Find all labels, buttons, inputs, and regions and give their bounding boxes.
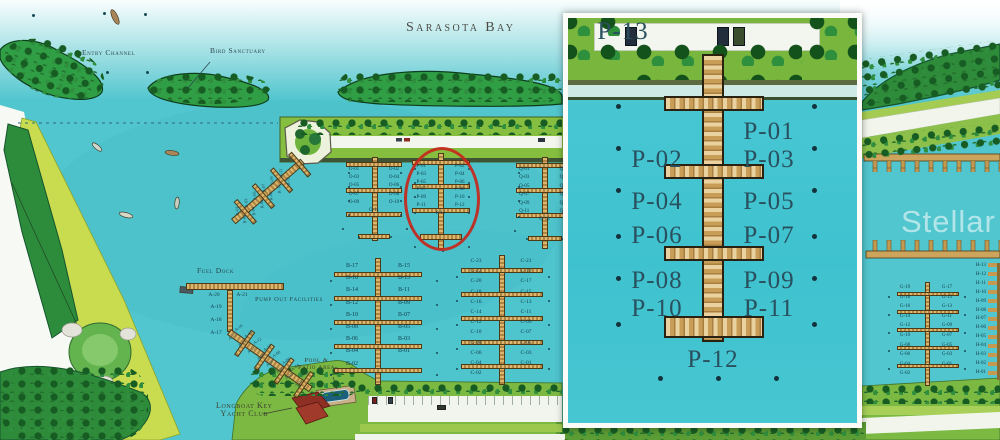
- slip-label: P-08: [602, 267, 712, 295]
- slip-label: G-19: [890, 283, 920, 293]
- slip-label: B-11: [385, 284, 423, 296]
- dock-h-fingers: [988, 263, 1000, 380]
- slip-label: O-11: [339, 207, 409, 215]
- slip-label: G-09: [932, 321, 962, 331]
- slip-label: C-21: [508, 256, 544, 266]
- highlight-ellipse-dock-p: [404, 147, 480, 251]
- slip-label: C-14: [458, 307, 494, 317]
- bird-sanctuary-label: Bird Sanctuary: [210, 47, 266, 55]
- slip-label: G-18: [890, 293, 920, 303]
- slip-label: B-09: [385, 297, 423, 309]
- slip-label: C-03: [508, 348, 544, 358]
- slip-label: P-01: [714, 118, 824, 146]
- slip-label: G-08: [890, 341, 920, 351]
- slip-label: P-10: [602, 295, 712, 323]
- slip-label: B-01: [385, 345, 423, 357]
- slip-label: C-22: [458, 266, 494, 276]
- slip-label: C-09: [508, 317, 544, 327]
- slip-label: P-02: [602, 146, 712, 174]
- slip-label: H-13: [964, 262, 986, 271]
- slip-label: P-07: [714, 222, 824, 250]
- slip-label: G-13: [932, 302, 962, 312]
- marina-site-plan: O-01O-02O-03O-04O-05O-06O-07O-08O-09O-10…: [0, 0, 1000, 440]
- slip-label: B-17: [333, 260, 371, 272]
- dock-g-slip-labels: G-19G-17G-18G-15G-16G-13G-14G-11G-12G-09…: [890, 283, 962, 379]
- slip-label: C-11: [508, 307, 544, 317]
- inset-dock-p-zoom: P-01P-02P-03P-04P-05P-06P-07P-08P-09P-10…: [563, 13, 862, 428]
- slip-label: H-12: [964, 271, 986, 280]
- fuel-dock-pier: [186, 283, 284, 290]
- slip-label: G-10: [890, 331, 920, 341]
- slip-label: B-03: [385, 333, 423, 345]
- slip-label: P-11: [714, 295, 824, 323]
- slip-label: G-05: [932, 341, 962, 351]
- yacht-club-label: Longboat Key Yacht Club: [216, 402, 273, 419]
- inset-slip-labels: P-01P-02P-03P-04P-05P-06P-07P-08P-09P-10…: [568, 18, 857, 423]
- southwest-trees: [0, 366, 148, 440]
- slip-label: O-07: [339, 191, 369, 199]
- slip-label: B-16: [333, 272, 371, 284]
- dock-h-slip-labels: H-13H-12H-11H-10H-09H-08H-07H-06H-05H-04…: [964, 262, 986, 378]
- slip-label: B-06: [333, 333, 371, 345]
- slip-label: O-04: [379, 174, 409, 182]
- dock-q-base: [528, 236, 562, 241]
- slip-label: C-06: [458, 348, 494, 358]
- slip-label: C-18: [458, 287, 494, 297]
- dock-a-slip-labels: A-20A-21: [204, 291, 252, 299]
- pool-patio-line2: Patio Area: [298, 365, 335, 372]
- slip-label: H-10: [964, 289, 986, 298]
- slip-label: Q-01: [509, 166, 540, 174]
- slip-label: O-03: [339, 174, 369, 182]
- slip-label: H-08: [964, 307, 986, 316]
- slip-label: G-17: [932, 283, 962, 293]
- sand-bunker: [62, 323, 82, 337]
- slip-label: C-04: [458, 358, 494, 368]
- slip-label: C-01: [508, 358, 544, 368]
- car: [372, 397, 377, 404]
- slip-label: A-20: [204, 291, 224, 299]
- bay-title: Sarasota Bay: [406, 21, 515, 36]
- slip-label: O-09: [339, 199, 369, 207]
- slip-label: O-02: [379, 166, 409, 174]
- slip-label: C-10: [458, 327, 494, 337]
- slip-label: C-12: [458, 317, 494, 327]
- slip-label: C-17: [508, 276, 544, 286]
- slip-label: Q-03: [509, 174, 540, 182]
- slip-label: P-05: [714, 188, 824, 216]
- slip-label: H-01: [964, 369, 986, 378]
- slip-label: C-02: [458, 368, 494, 378]
- dock-o-base: [358, 234, 390, 239]
- slip-label: G-03: [932, 350, 962, 360]
- slip-label: B-02: [333, 358, 371, 370]
- slip-label: P-06: [602, 222, 712, 250]
- slip-label: G-14: [890, 312, 920, 322]
- slip-label: G-11: [932, 312, 962, 322]
- slip-label: H-03: [964, 351, 986, 360]
- slip-label: C-07: [508, 327, 544, 337]
- slip-label: B-14: [333, 284, 371, 296]
- slip-label: B-13: [385, 272, 423, 284]
- slip-label: C-08: [458, 338, 494, 348]
- east-long-dock: [866, 251, 1000, 258]
- slip-label: A-18: [203, 314, 229, 327]
- slip-label: H-02: [964, 360, 986, 369]
- pump-out-label: Pump Out Facilities: [255, 297, 323, 304]
- peninsula-road: [304, 136, 562, 148]
- slip-label: H-05: [964, 333, 986, 342]
- slip-label: B-10: [333, 309, 371, 321]
- slip-label: P-13: [568, 18, 678, 46]
- slip-label: B-07: [385, 309, 423, 321]
- east-shore-trees: [864, 384, 1000, 404]
- slip-label: A-21: [232, 291, 252, 299]
- slip-label: R-12: [281, 174, 293, 187]
- slip-label: G-15: [932, 293, 962, 303]
- slip-label: C-13: [508, 297, 544, 307]
- peninsula-trees: [298, 118, 562, 135]
- pool-patio-label: Pool & Patio Area: [298, 358, 335, 372]
- slip-label: C-23: [458, 256, 494, 266]
- slip-label: O-05: [339, 182, 369, 190]
- slip-label: C-16: [458, 297, 494, 307]
- slip-label: Q-11: [509, 208, 540, 216]
- fuel-dock-label: Fuel Dock: [197, 267, 234, 275]
- dock-c-slip-labels: C-23C-21C-22C-19C-20C-17C-18C-15C-16C-13…: [458, 256, 544, 378]
- car: [437, 405, 446, 410]
- slip-label: B-12: [333, 297, 371, 309]
- parking-stalls: [368, 396, 562, 405]
- slip-label: G-02: [890, 369, 920, 379]
- slip-label: H-04: [964, 342, 986, 351]
- slip-label: H-06: [964, 324, 986, 333]
- slip-label: H-07: [964, 315, 986, 324]
- slip-label: C-15: [508, 287, 544, 297]
- slip-label: C-20: [458, 276, 494, 286]
- entry-channel-label: Entry Channel: [82, 49, 135, 57]
- slip-label: G-06: [890, 350, 920, 360]
- sand-bunker: [120, 328, 136, 340]
- slip-label: G-07: [932, 331, 962, 341]
- stellar-mls-watermark: Stellar MLS: [901, 204, 1000, 240]
- slip-label: P-09: [714, 267, 824, 295]
- slip-label: G-04: [890, 360, 920, 370]
- slip-label: B-04: [333, 345, 371, 357]
- yacht-club-line2: Yacht Club: [216, 410, 273, 418]
- slip-label: H-09: [964, 298, 986, 307]
- slip-label: Q-07: [509, 191, 540, 199]
- slip-label: A-19: [203, 301, 229, 314]
- island-foliage: [148, 72, 270, 104]
- slip-label: B-15: [385, 260, 423, 272]
- dock-b-slip-labels: B-17B-15B-16B-13B-14B-11B-12B-09B-10B-07…: [333, 260, 423, 370]
- dock-o-slip-labels: O-01O-02O-03O-04O-05O-06O-07O-08O-09O-10…: [339, 166, 409, 215]
- slip-label: Q-05: [509, 183, 540, 191]
- slip-label: O-01: [339, 166, 369, 174]
- slip-label: Q-09: [509, 200, 540, 208]
- slip-label: P-03: [714, 146, 824, 174]
- slip-label: P-04: [602, 188, 712, 216]
- south-hedge-trees: [356, 383, 562, 397]
- slip-label: G-12: [890, 321, 920, 331]
- slip-label: H-11: [964, 280, 986, 289]
- slip-label: B-05: [385, 321, 423, 333]
- island-foliage: [338, 72, 562, 102]
- car: [388, 397, 393, 404]
- channel-marker-dots: [103, 12, 106, 15]
- slip-label: C-19: [508, 266, 544, 276]
- slip-label: C-05: [508, 338, 544, 348]
- slip-label: P-12: [648, 346, 778, 374]
- slip-label: G-16: [890, 302, 920, 312]
- slip-label: B-08: [333, 321, 371, 333]
- slip-label: G-01: [932, 360, 962, 370]
